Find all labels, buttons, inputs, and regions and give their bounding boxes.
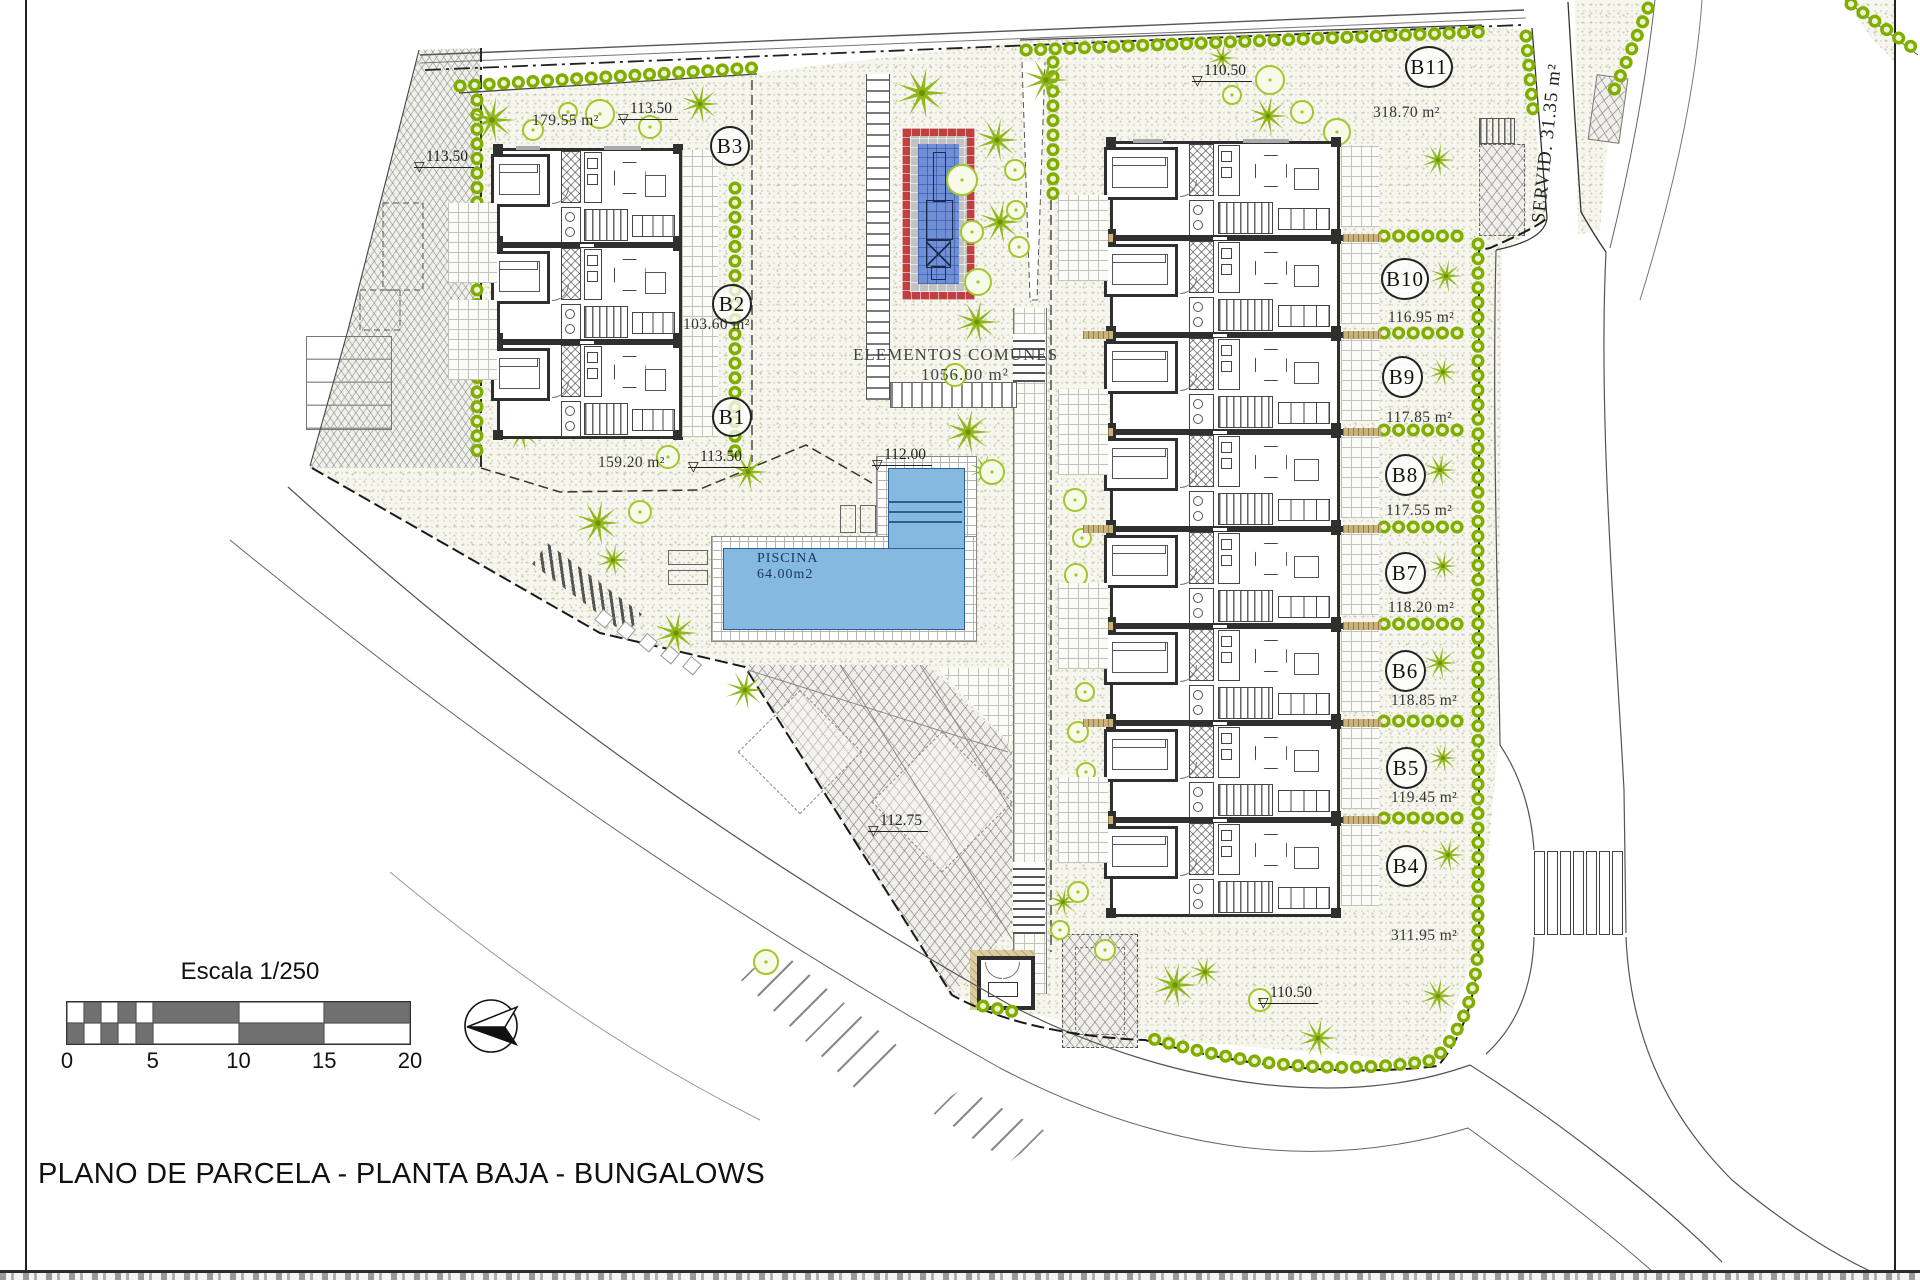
scale-segment — [324, 1002, 410, 1023]
bathroom — [1189, 297, 1214, 333]
plot-area-label: 117.85 m² — [1386, 409, 1452, 427]
sofa-icon — [632, 409, 675, 431]
kitchen-appliance-icon — [1221, 167, 1232, 178]
kitchen-appliance-icon — [1221, 652, 1232, 663]
bed-pillow-icon — [1112, 836, 1166, 845]
pool-label: PISCINA 64.00m2 — [757, 551, 818, 583]
stairs — [584, 209, 629, 241]
plot-area-label: 116.95 m² — [1388, 309, 1454, 327]
terrace-tiles — [1341, 242, 1379, 324]
kitchen-appliance-icon — [587, 352, 598, 363]
sofa-icon — [1278, 402, 1331, 424]
wall-pier — [1106, 908, 1116, 918]
scale-title: Escala 1/250 — [140, 958, 360, 986]
toilet-icon — [565, 212, 575, 222]
kitchen-appliance-icon — [1221, 151, 1232, 162]
stairs — [1218, 784, 1273, 816]
kitchen-appliance-icon — [1221, 361, 1232, 372]
terrace-tiles — [682, 150, 718, 437]
elevation-arrow-icon: ▽ — [618, 113, 629, 127]
common-area-label: ELEMENTOS COMUNES 1056.00 m² — [853, 345, 1058, 385]
sofa-icon — [1278, 693, 1331, 715]
patio-tiles — [1058, 195, 1108, 281]
sun-lounger — [840, 505, 856, 533]
plot-area-label: 179.55 m² — [532, 112, 599, 130]
dining-table-icon — [1255, 834, 1287, 866]
pergola-band — [890, 382, 1017, 408]
parking-stalls — [928, 1088, 1048, 1162]
page-border-left — [25, 0, 27, 1273]
sofa-icon — [1278, 499, 1331, 521]
bed-pillow-icon — [1112, 642, 1166, 651]
plot-label-B1: B1 — [712, 397, 752, 437]
parking-stalls — [738, 952, 906, 1092]
dining-table-icon — [1255, 446, 1287, 478]
party-wall-gap — [1213, 819, 1227, 822]
patio-tiles — [1058, 389, 1108, 475]
zebra-crossing — [1534, 851, 1630, 937]
retaining-steps — [306, 336, 392, 430]
fountain-icon — [926, 200, 953, 240]
scale-tick: 0 — [61, 1048, 73, 1074]
patio-tiles — [1058, 583, 1108, 669]
site-plan-page: PISCINA 64.00m2 — [0, 0, 1920, 1280]
kitchen-appliance-icon — [587, 174, 598, 185]
crosswalk-bar — [1560, 851, 1571, 935]
bathroom — [1189, 685, 1214, 721]
living-table-icon — [645, 175, 666, 196]
wall-pier — [1106, 137, 1116, 147]
plot-area-label: 159.20 m² — [598, 454, 665, 472]
living-table-icon — [1294, 265, 1319, 286]
bed-pillow-icon — [499, 358, 538, 367]
patio-tiles — [448, 300, 497, 380]
elevation-marker: 110.50▽ — [1258, 984, 1318, 1004]
terrace-tiles — [1341, 436, 1379, 518]
threshold-hatch — [1343, 331, 1381, 339]
kitchen-appliance-icon — [1221, 458, 1232, 469]
kitchen-appliance-icon — [1221, 248, 1232, 259]
kitchen-appliance-icon — [1221, 555, 1232, 566]
patio-tiles — [1058, 777, 1108, 863]
scale-segment — [136, 1002, 153, 1023]
party-wall-gap — [1213, 334, 1227, 337]
fountain-icon — [926, 240, 951, 268]
kitchen-appliance-icon — [587, 255, 598, 266]
scale-tick: 5 — [147, 1048, 159, 1074]
stairs — [1218, 202, 1273, 234]
party-wall-gap — [580, 244, 594, 247]
bed-pillow-icon — [1112, 739, 1166, 748]
sink-icon — [565, 421, 575, 431]
scale-segment — [153, 1002, 239, 1023]
bed-pillow-icon — [1112, 448, 1166, 457]
window-icon — [516, 146, 540, 150]
dining-table-icon — [1255, 737, 1287, 769]
sofa-icon — [632, 312, 675, 334]
bed-pillow-icon — [1112, 254, 1166, 263]
elevation-marker: 113.50▽ — [688, 448, 748, 468]
living-table-icon — [1294, 168, 1319, 189]
terrace-tiles — [1341, 145, 1379, 227]
crosswalk-bar — [1586, 851, 1597, 935]
kitchen-appliance-icon — [587, 158, 598, 169]
plot-label-B9: B9 — [1382, 356, 1423, 398]
plot-label-B10: B10 — [1381, 258, 1429, 300]
plot-area-label: 103.60 m² — [683, 316, 750, 334]
wall-pier — [1331, 908, 1341, 918]
north-arrow-icon — [465, 1000, 517, 1052]
dining-table-icon — [1255, 155, 1287, 187]
scale-segment — [324, 1023, 410, 1044]
party-wall-gap — [1213, 722, 1227, 725]
kitchen-appliance-icon — [1221, 345, 1232, 356]
verge-far-corner — [1845, 0, 1894, 62]
elevation-arrow-icon: ▽ — [872, 459, 883, 473]
kitchen-appliance-icon — [1221, 830, 1232, 841]
living-table-icon — [645, 272, 666, 293]
scale-tick: 10 — [226, 1048, 250, 1074]
dining-table-icon — [1255, 252, 1287, 284]
elevation-arrow-icon: ▽ — [1258, 997, 1269, 1011]
bed-pillow-icon — [1112, 545, 1166, 554]
door-arc-icon — [1003, 962, 1020, 979]
service-yard-inner — [1075, 947, 1125, 1035]
plot-label-B4: B4 — [1386, 845, 1427, 887]
party-wall-gap — [580, 341, 594, 344]
bathroom — [1189, 394, 1214, 430]
kitchen-appliance-icon — [1221, 636, 1232, 647]
living-table-icon — [1294, 653, 1319, 674]
sofa-icon — [1278, 596, 1331, 618]
toilet-icon — [565, 406, 575, 416]
ramp-grid-top-right — [1479, 144, 1525, 236]
elevation-marker: 113.50▽ — [618, 100, 678, 120]
common-area-name: ELEMENTOS COMUNES — [853, 345, 1058, 364]
plot-label-B7: B7 — [1385, 552, 1426, 594]
threshold-hatch — [1343, 525, 1381, 533]
fountain-icon — [933, 152, 946, 202]
elevation-marker: 112.00▽ — [872, 446, 932, 466]
plot-label-B5: B5 — [1386, 747, 1427, 789]
kitchen-appliance-icon — [1221, 539, 1232, 550]
terrace-tiles — [1341, 339, 1379, 421]
sofa-icon — [1278, 305, 1331, 327]
sun-lounger — [668, 570, 708, 585]
threshold-hatch — [1343, 234, 1381, 242]
scale-segment — [118, 1002, 135, 1023]
kitchen-appliance-icon — [1221, 846, 1232, 857]
stairs — [1218, 687, 1273, 719]
terrace-tiles — [1341, 824, 1379, 906]
stairs-top-right — [1479, 118, 1515, 144]
pool-water-arm — [888, 468, 965, 554]
utility-structure — [977, 956, 1035, 1010]
living-table-icon — [1294, 847, 1319, 868]
plot-area-label: 118.85 m² — [1391, 692, 1457, 710]
elevation-arrow-icon: ▽ — [414, 161, 425, 175]
utility-inner-box — [988, 982, 1018, 997]
sink-icon — [565, 324, 575, 334]
stairs — [584, 403, 629, 435]
dining-table-icon — [1255, 640, 1287, 672]
plot-area-label: 117.55 m² — [1386, 502, 1452, 520]
crosswalk-bar — [1612, 851, 1623, 935]
walkway-stairs-lower — [1013, 862, 1045, 934]
window-icon — [1243, 139, 1289, 143]
common-area-value: 1056.00 m² — [921, 365, 1009, 384]
window-icon — [604, 146, 641, 150]
crosswalk-bar — [1573, 851, 1584, 935]
plot-label-B6: B6 — [1385, 650, 1426, 692]
window-icon — [1133, 139, 1163, 143]
crosswalk-bar — [1534, 851, 1545, 935]
scale-segment — [67, 1023, 84, 1044]
scale-segment — [67, 1002, 84, 1023]
patio-tiles — [448, 203, 497, 283]
scale-segment — [84, 1002, 101, 1023]
wall-pier — [1331, 137, 1341, 147]
bathroom — [1189, 879, 1214, 915]
scale-segment — [153, 1023, 239, 1044]
door-arc-icon — [985, 962, 1002, 979]
living-table-icon — [1294, 459, 1319, 480]
plot-label-B11: B11 — [1405, 46, 1453, 88]
scale-segment — [101, 1023, 118, 1044]
plot-area-label: 118.20 m² — [1388, 599, 1454, 617]
threshold-hatch — [1343, 622, 1381, 630]
threshold-hatch — [1343, 816, 1381, 824]
party-wall-gap — [1213, 625, 1227, 628]
scale-tick: 20 — [398, 1048, 422, 1074]
scale-segment — [239, 1023, 325, 1044]
bathroom — [1189, 491, 1214, 527]
crosswalk-bar — [1547, 851, 1558, 935]
party-wall-gap — [1213, 528, 1227, 531]
elevation-marker: 112.75▽ — [868, 812, 928, 832]
plot-area-label: 318.70 m² — [1373, 104, 1440, 122]
page-border-right — [1894, 0, 1896, 1273]
stairs — [1218, 493, 1273, 525]
sun-lounger — [668, 550, 708, 565]
bed-pillow-icon — [499, 261, 538, 270]
living-table-icon — [1294, 556, 1319, 577]
plot-area-label: 311.95 m² — [1391, 927, 1457, 945]
sun-lounger — [860, 505, 876, 533]
crosswalk-bar — [1599, 851, 1610, 935]
kitchen-appliance-icon — [587, 368, 598, 379]
kitchen-appliance-icon — [1221, 749, 1232, 760]
bed-pillow-icon — [1112, 157, 1166, 166]
scale-segment — [239, 1002, 325, 1023]
elevation-marker: 113.50▽ — [414, 148, 474, 168]
sofa-icon — [632, 215, 675, 237]
kitchen-appliance-icon — [1221, 442, 1232, 453]
terrace-tiles — [1341, 727, 1379, 809]
drawing-title: PLANO DE PARCELA - PLANTA BAJA - BUNGALO… — [38, 1158, 765, 1191]
elevation-arrow-icon: ▽ — [688, 461, 699, 475]
scale-segment — [118, 1023, 135, 1044]
plot-label-B8: B8 — [1385, 454, 1426, 496]
bathroom — [1189, 200, 1214, 236]
scale-segment — [101, 1002, 118, 1023]
bed-pillow-icon — [499, 164, 538, 173]
plot-area-label: 119.45 m² — [1391, 789, 1457, 807]
sofa-icon — [1278, 208, 1331, 230]
elevation-arrow-icon: ▽ — [1192, 75, 1203, 89]
bathroom — [1189, 782, 1214, 818]
threshold-hatch — [1083, 719, 1113, 727]
threshold-hatch — [1343, 428, 1381, 436]
living-table-icon — [645, 369, 666, 390]
stairs — [584, 306, 629, 338]
threshold-hatch — [1083, 525, 1113, 533]
pool-name: PISCINA — [757, 551, 818, 566]
scale-tick: 15 — [312, 1048, 336, 1074]
elevation-marker: 110.50▽ — [1192, 62, 1252, 82]
dining-table-icon — [1255, 543, 1287, 575]
party-wall-gap — [1213, 237, 1227, 240]
kitchen-appliance-icon — [1221, 264, 1232, 275]
party-wall-gap — [1213, 431, 1227, 434]
bathroom — [1189, 588, 1214, 624]
living-table-icon — [1294, 362, 1319, 383]
threshold-hatch — [1343, 719, 1381, 727]
living-table-icon — [1294, 750, 1319, 771]
wall-pier — [493, 430, 503, 440]
sink-icon — [565, 227, 575, 237]
sofa-icon — [1278, 887, 1331, 909]
kitchen-appliance-icon — [1221, 733, 1232, 744]
wall-pier — [493, 144, 503, 154]
stairs — [1218, 590, 1273, 622]
bed-pillow-icon — [1112, 351, 1166, 360]
elevation-arrow-icon: ▽ — [868, 825, 879, 839]
threshold-hatch — [1083, 331, 1113, 339]
scale-bar — [67, 1002, 410, 1044]
terrace-tiles — [1341, 630, 1379, 712]
stairs — [1218, 299, 1273, 331]
sofa-icon — [1278, 790, 1331, 812]
cropped-footer-text — [0, 1273, 1920, 1280]
pool-area: 64.00m2 — [757, 567, 813, 582]
scale-segment — [136, 1023, 153, 1044]
stairs — [1218, 396, 1273, 428]
scale-segment — [84, 1023, 101, 1044]
plot-label-B3: B3 — [710, 126, 750, 166]
toilet-icon — [565, 309, 575, 319]
kitchen-appliance-icon — [587, 271, 598, 282]
terrace-tiles — [1341, 533, 1379, 615]
fountain-icon — [931, 266, 946, 280]
dining-table-icon — [1255, 349, 1287, 381]
stairs — [1218, 881, 1273, 913]
